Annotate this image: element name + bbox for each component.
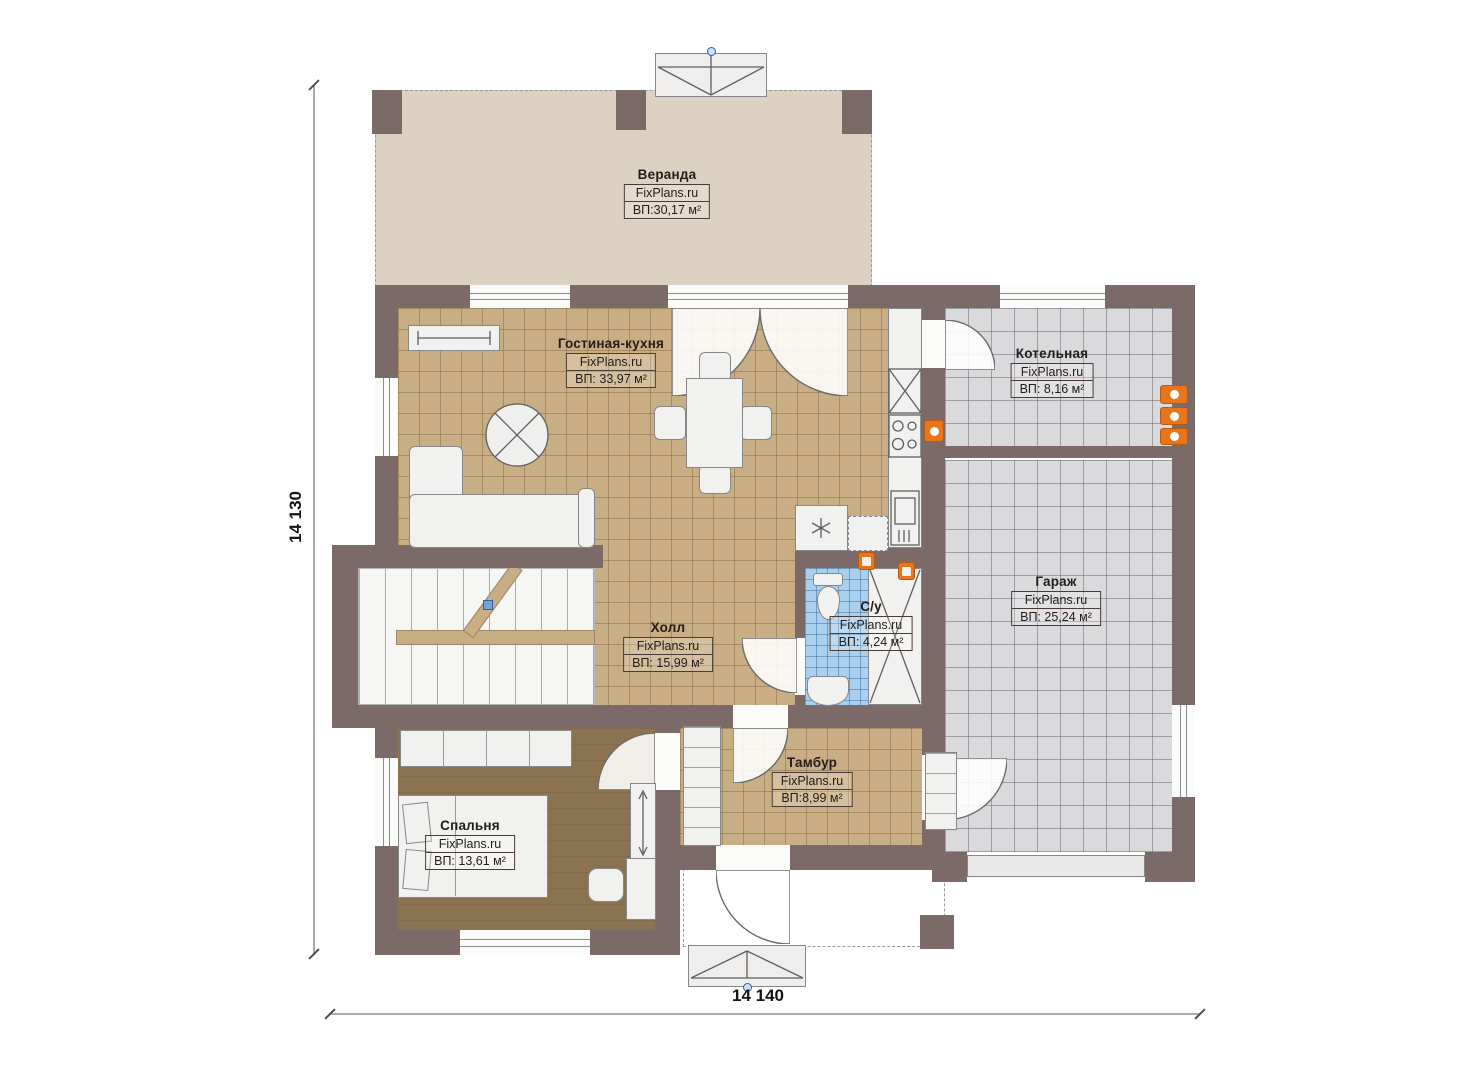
dimension-label-height: 14 130 — [286, 491, 306, 543]
dimension-line-horizontal — [330, 1013, 1200, 1015]
room-area: ВП: 4,24 м² — [831, 634, 912, 650]
wall — [1145, 852, 1195, 882]
window — [375, 378, 398, 456]
room-area: ВП: 33,97 м² — [567, 371, 655, 387]
room-name: Тамбур — [772, 755, 853, 770]
watermark-box: FixPlans.ru ВП: 33,97 м² — [566, 353, 656, 388]
room-label-bedroom: Спальня FixPlans.ru ВП: 13,61 м² — [425, 818, 515, 870]
brand-watermark: FixPlans.ru — [1012, 592, 1100, 609]
wall — [332, 568, 358, 705]
boiler-unit-icon — [1160, 385, 1188, 404]
wall — [795, 568, 805, 638]
brand-watermark: FixPlans.ru — [773, 773, 852, 790]
wall — [332, 545, 603, 568]
room-name: Веранда — [624, 167, 710, 182]
brand-watermark: FixPlans.ru — [426, 836, 514, 853]
washer-asterisk-icon — [795, 505, 848, 551]
chair — [699, 464, 731, 494]
door-arc — [742, 638, 797, 693]
window — [375, 758, 398, 846]
chair — [740, 406, 772, 440]
wall — [375, 705, 398, 758]
wall — [375, 285, 398, 378]
kitchen-sink — [890, 490, 920, 546]
door-opening — [733, 705, 788, 728]
wall — [655, 790, 680, 955]
room-area: ВП: 15,99 м² — [624, 655, 712, 671]
room-name: Котельная — [1011, 346, 1094, 361]
wardrobe — [400, 730, 572, 767]
watermark-box: FixPlans.ru ВП: 13,61 м² — [425, 835, 515, 870]
dimension-line-vertical — [313, 85, 315, 955]
garage-gate — [967, 855, 1145, 877]
chair — [654, 406, 686, 440]
bedside-cabinet — [626, 858, 656, 920]
boiler-unit-icon — [1160, 407, 1188, 425]
brand-watermark: FixPlans.ru — [1012, 364, 1093, 381]
wall — [848, 285, 1000, 308]
wall-unit-icon — [898, 562, 915, 580]
watermark-box: FixPlans.ru ВП: 8,16 м² — [1011, 363, 1094, 398]
floor-plan-canvas: Веранда FixPlans.ru ВП:30,17 м² Гостиная… — [0, 0, 1474, 1080]
wall — [570, 285, 668, 308]
window — [470, 285, 570, 308]
wall — [795, 695, 805, 708]
room-name: С/у — [830, 599, 913, 614]
room-area: ВП: 25,24 м² — [1012, 609, 1100, 625]
dining-table — [686, 378, 743, 468]
garage-steps — [925, 752, 957, 830]
wall-unit-icon — [858, 552, 875, 570]
fridge — [888, 368, 922, 414]
door-arc — [598, 733, 655, 790]
gas-meter-icon — [924, 420, 944, 442]
room-name: Гараж — [1011, 574, 1101, 589]
brand-watermark: FixPlans.ru — [625, 185, 709, 202]
wall — [788, 705, 932, 728]
stove — [888, 414, 922, 458]
room-name: Холл — [623, 620, 713, 635]
window — [1000, 285, 1105, 308]
entrance-door-arc — [716, 870, 790, 944]
room-label-veranda: Веранда FixPlans.ru ВП:30,17 м² — [624, 167, 710, 219]
snap-marker-icon — [707, 47, 716, 56]
brand-watermark: FixPlans.ru — [624, 638, 712, 655]
watermark-box: FixPlans.ru ВП:8,99 м² — [772, 772, 853, 807]
canopy-top-lines — [655, 53, 767, 97]
wall — [1172, 285, 1195, 705]
room-area: ВП:30,17 м² — [625, 202, 709, 218]
wall — [922, 308, 945, 320]
bathroom-sink — [807, 676, 849, 706]
door-arc — [760, 308, 848, 396]
tv-console-lines — [408, 325, 500, 351]
room-label-garage: Гараж FixPlans.ru ВП: 25,24 м² — [1011, 574, 1101, 626]
room-label-hall: Холл FixPlans.ru ВП: 15,99 м² — [623, 620, 713, 672]
countertop — [848, 516, 888, 551]
veranda-post — [372, 90, 402, 134]
room-label-wc: С/у FixPlans.ru ВП: 4,24 м² — [830, 599, 913, 651]
door-arc — [945, 320, 995, 370]
room-label-living: Гостиная-кухня FixPlans.ru ВП: 33,97 м² — [558, 336, 664, 388]
door-opening — [655, 733, 680, 790]
room-label-boiler: Котельная FixPlans.ru ВП: 8,16 м² — [1011, 346, 1094, 398]
canopy-bottom-lines — [688, 945, 806, 987]
sofa-armrest — [578, 488, 595, 548]
watermark-box: FixPlans.ru ВП: 25,24 м² — [1011, 591, 1101, 626]
veranda-door-window — [668, 285, 848, 308]
wall — [680, 845, 716, 870]
door-opening — [922, 320, 945, 368]
room-name: Спальня — [425, 818, 515, 833]
window — [460, 930, 590, 955]
room-label-tambour: Тамбур FixPlans.ru ВП:8,99 м² — [772, 755, 853, 807]
watermark-box: FixPlans.ru ВП: 4,24 м² — [830, 616, 913, 651]
room-area: ВП: 8,16 м² — [1012, 381, 1093, 397]
stair-landing — [396, 630, 595, 645]
dimension-label-width: 14 140 — [732, 986, 784, 1006]
wall — [945, 446, 1172, 458]
veranda-post — [616, 90, 646, 130]
entrance-opening — [716, 845, 790, 870]
sofa — [409, 494, 593, 548]
stool — [588, 868, 624, 902]
brand-watermark: FixPlans.ru — [831, 617, 912, 634]
boiler-unit-icon — [1160, 428, 1188, 445]
stair-marker-icon — [483, 600, 493, 610]
room-name: Гостиная-кухня — [558, 336, 664, 351]
window — [1172, 705, 1195, 797]
wall — [790, 845, 922, 870]
room-area: ВП:8,99 м² — [773, 790, 852, 806]
dresser-arrow-icon — [630, 783, 656, 863]
watermark-box: FixPlans.ru ВП:30,17 м² — [624, 184, 710, 219]
hallway-closet — [683, 726, 721, 846]
room-area: ВП: 13,61 м² — [426, 853, 514, 869]
toilet-tank — [813, 573, 843, 586]
watermark-box: FixPlans.ru ВП: 15,99 м² — [623, 637, 713, 672]
porch-post — [920, 915, 954, 949]
round-table — [484, 402, 550, 468]
veranda-post — [842, 90, 872, 134]
wall — [375, 930, 460, 955]
brand-watermark: FixPlans.ru — [567, 354, 655, 371]
wall — [932, 852, 967, 882]
